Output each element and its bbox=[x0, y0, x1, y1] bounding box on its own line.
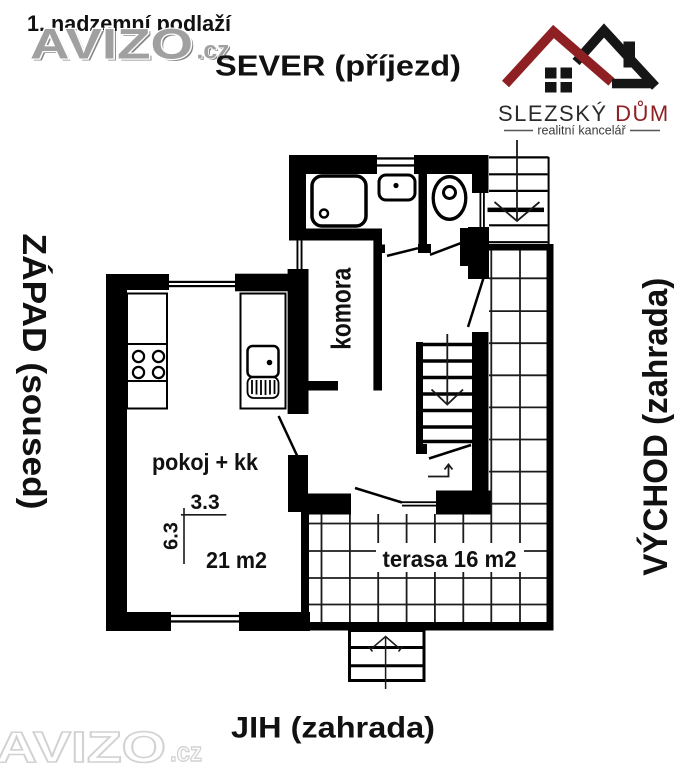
svg-text:6.3: 6.3 bbox=[161, 522, 183, 550]
svg-text:komora: komora bbox=[326, 267, 357, 349]
svg-text:21 m2: 21 m2 bbox=[206, 547, 267, 573]
svg-text:terasa 16 m2: terasa 16 m2 bbox=[383, 546, 517, 572]
svg-text:ZÁPAD (soused): ZÁPAD (soused) bbox=[16, 234, 53, 510]
svg-text:VÝCHOD (zahrada): VÝCHOD (zahrada) bbox=[637, 278, 675, 576]
svg-text:AVIZO: AVIZO bbox=[30, 21, 193, 69]
svg-text:SEVER (příjezd): SEVER (příjezd) bbox=[215, 51, 461, 83]
svg-text:3.3: 3.3 bbox=[191, 491, 220, 514]
svg-text:AVIZO: AVIZO bbox=[0, 723, 166, 768]
svg-text:realitní kancelář: realitní kancelář bbox=[537, 124, 626, 138]
svg-text:JIH (zahrada): JIH (zahrada) bbox=[231, 712, 435, 745]
svg-text:.cz: .cz bbox=[170, 737, 202, 767]
svg-text:SLEZSKÝ DŮM: SLEZSKÝ DŮM bbox=[498, 101, 670, 126]
svg-text:pokoj + kk: pokoj + kk bbox=[152, 449, 258, 475]
